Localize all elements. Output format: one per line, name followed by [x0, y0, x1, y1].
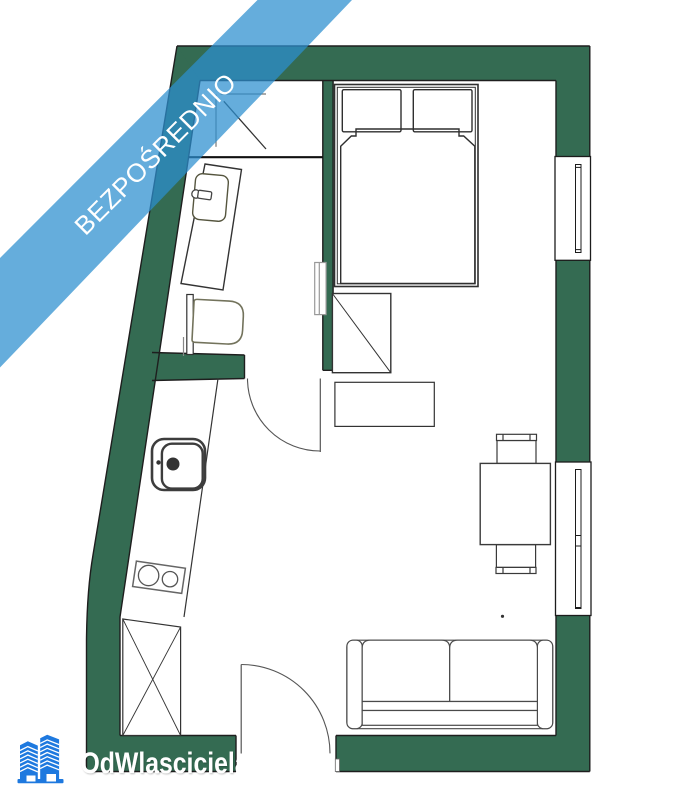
svg-text:a: a — [235, 747, 249, 780]
svg-text:OdWlasciciel: OdWlasciciel — [81, 747, 235, 780]
